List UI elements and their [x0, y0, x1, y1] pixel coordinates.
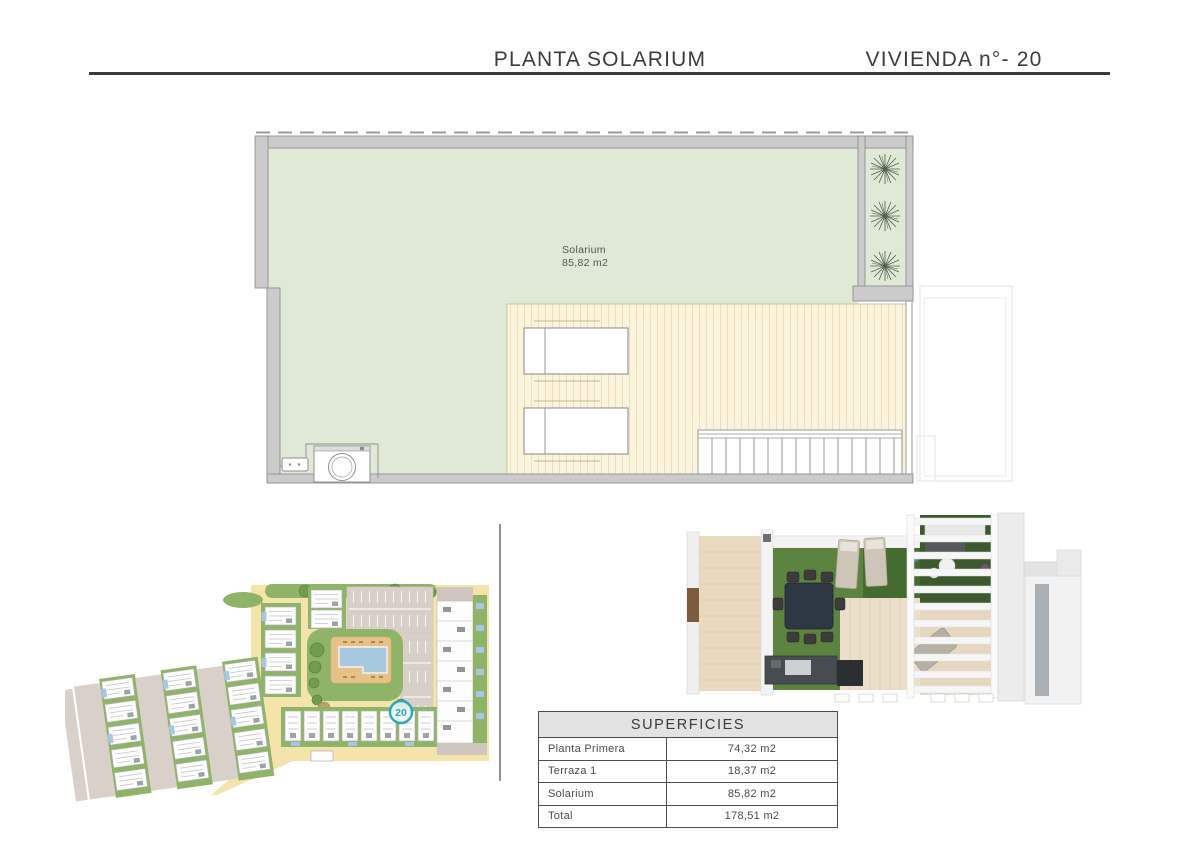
row-label: Planta Primera [539, 738, 667, 760]
stairs [698, 430, 902, 474]
right-structure [998, 513, 1081, 704]
row-value: 85,82 m2 [667, 783, 837, 805]
table-title: SUPERFICIES [539, 712, 837, 738]
render-top-view [685, 510, 1095, 705]
row-value: 178,51 m2 [667, 806, 837, 828]
housing-block-top [308, 587, 346, 629]
section-divider [499, 524, 501, 781]
housing-column-right [437, 587, 487, 755]
superficies-table: SUPERFICIES Planta Primera 74,32 m2 Terr… [538, 711, 838, 828]
site-plan: 20 [65, 555, 495, 805]
row-label: Terraza 1 [539, 761, 667, 783]
table-row: Terraza 1 18,37 m2 [539, 761, 837, 784]
pergola [907, 515, 998, 698]
unit-title: VIVIENDA n°- 20 [804, 48, 1104, 72]
page: PLANTA SOLARIUM VIVIENDA n°- 20 [0, 0, 1200, 849]
room-area: 85,82 m2 [562, 257, 608, 270]
row-label: Solarium [539, 783, 667, 805]
unit-20-marker: 20 [390, 701, 412, 723]
header-rule [89, 72, 1110, 75]
room-label: Solarium 85,82 m2 [562, 244, 608, 270]
page-title: PLANTA SOLARIUM [450, 48, 750, 72]
table-row: Total 178,51 m2 [539, 806, 837, 828]
row-value: 18,37 m2 [667, 761, 837, 783]
housing-block-center [261, 603, 301, 697]
table-row: Solarium 85,82 m2 [539, 783, 837, 806]
solarium-floor-plan [252, 126, 1022, 488]
table-row: Planta Primera 74,32 m2 [539, 738, 837, 761]
power-outlet-icon [282, 458, 308, 471]
row-value: 74,32 m2 [667, 738, 837, 760]
neighbor-outline [917, 286, 1012, 481]
row-label: Total [539, 806, 667, 828]
room-name: Solarium [562, 244, 608, 257]
bbq-counter [765, 656, 863, 686]
svg-text:20: 20 [395, 707, 407, 719]
